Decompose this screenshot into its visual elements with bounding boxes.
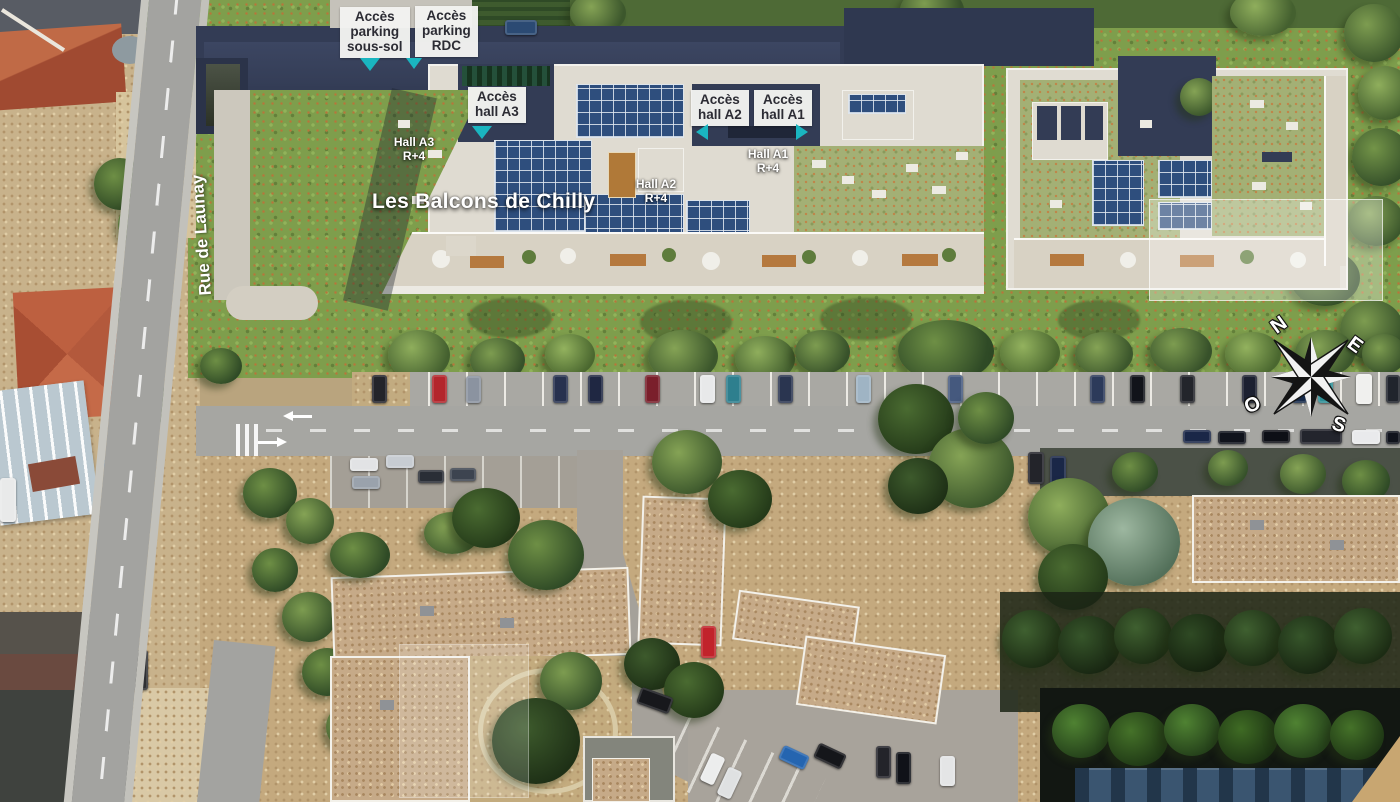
car (505, 20, 537, 35)
car (1180, 375, 1195, 403)
terrace-planter-wood (610, 254, 646, 266)
van (0, 478, 16, 522)
tree (545, 334, 595, 376)
car (372, 375, 387, 403)
bush (1164, 704, 1220, 756)
house-roof-red (0, 24, 127, 111)
car (940, 756, 955, 786)
roof-furniture (1286, 122, 1298, 130)
road-arrow-left-head (283, 411, 293, 421)
tree (1224, 610, 1282, 666)
label-acces-hall-a1: Accès hall A1 (754, 90, 812, 126)
terrace-planter-wood (470, 256, 504, 268)
roof-furniture (932, 186, 946, 194)
tree (1278, 616, 1338, 674)
roof-furniture (842, 176, 854, 184)
roof-furniture (1250, 100, 1264, 108)
tree (1150, 328, 1212, 374)
car (701, 626, 716, 658)
garden-patio (446, 236, 476, 256)
tree (1168, 614, 1228, 672)
aerial-site-plan: N E O S Accès parking sous-sol Accès par… (0, 0, 1400, 802)
garden-bench (398, 120, 410, 128)
car (432, 375, 447, 403)
tree (795, 330, 850, 374)
terrace-shrub (522, 250, 536, 264)
terrace-table (702, 252, 720, 270)
solar-array (1158, 160, 1212, 198)
terrace-table (560, 248, 576, 264)
entrance-canopy (728, 126, 798, 138)
label-acces-parking-sous-sol: Accès parking sous-sol (340, 7, 410, 58)
roof-furniture (906, 164, 918, 172)
building-roof (1192, 495, 1400, 583)
phase-highlight-overlay (400, 645, 528, 797)
car (1028, 452, 1044, 484)
walkway (214, 90, 254, 300)
road-arrow-right (258, 441, 278, 444)
building-roof (637, 496, 726, 647)
access-arrow-right-icon (796, 124, 808, 140)
roof-vent (420, 606, 434, 616)
car (466, 376, 481, 403)
terrace-band (318, 232, 984, 294)
roof-furniture (1252, 182, 1266, 190)
tree (1114, 608, 1172, 664)
roof-furniture (1140, 120, 1152, 128)
car (1386, 375, 1400, 403)
car (553, 375, 568, 403)
solar-panel (1061, 106, 1081, 140)
terrace-planter-wood (902, 254, 938, 266)
car (645, 375, 660, 403)
car (588, 375, 603, 403)
car (352, 476, 380, 489)
roof-vent (380, 700, 394, 710)
terrace-shrub (662, 248, 676, 262)
road-arrow-right-head (277, 437, 287, 447)
tree (252, 548, 298, 592)
label-acces-hall-a2: Accès hall A2 (691, 90, 749, 126)
roof-furniture (1050, 200, 1062, 208)
terrace-shrub (942, 248, 956, 262)
bush (1208, 450, 1248, 486)
car (948, 375, 963, 403)
bush (1218, 710, 1278, 764)
terrace-table (1120, 252, 1136, 268)
tree (888, 458, 948, 514)
solar-array (848, 94, 906, 114)
access-arrow-down-icon (472, 126, 492, 139)
car (896, 752, 911, 784)
bush (1274, 704, 1332, 758)
solar-array (576, 84, 684, 138)
tree (1000, 330, 1060, 376)
solar-array (494, 140, 592, 232)
solar-panel (1037, 106, 1057, 140)
tree (282, 592, 336, 642)
roof-planting-grid (462, 66, 550, 86)
phase-highlight-overlay (1150, 200, 1382, 300)
car (1130, 375, 1145, 403)
terrace-planter-wood (1050, 254, 1084, 266)
car (386, 455, 414, 468)
hall-a2-tag: Hall A2 R+4 (620, 178, 692, 206)
car (778, 375, 793, 403)
tree (452, 488, 520, 548)
project-title: Les Balcons de Chilly (372, 190, 595, 214)
tree (508, 520, 584, 590)
roof-vent (1330, 540, 1344, 550)
solar-panel (1085, 106, 1103, 140)
crosswalk (236, 424, 260, 456)
bush (1112, 452, 1158, 492)
building-roof-sliver (1075, 768, 1400, 802)
label-acces-parking-rdc: Accès parking RDC (415, 6, 478, 57)
road-arrow-left (292, 415, 312, 418)
roof-furniture (872, 190, 886, 198)
terrace-table (852, 250, 868, 266)
bush (1280, 454, 1326, 494)
tree (958, 392, 1014, 444)
roof-furniture (956, 152, 968, 160)
tree-shadow (468, 298, 552, 338)
tree (1075, 332, 1133, 376)
roof-vent (500, 618, 514, 628)
label-acces-hall-a3: Accès hall A3 (468, 87, 526, 123)
balcony-edge (318, 286, 984, 294)
access-arrow-left-icon (696, 124, 708, 140)
tree (708, 470, 772, 528)
building-roof-inner (592, 758, 650, 802)
bush (1108, 712, 1168, 766)
car (700, 375, 715, 403)
solar-panel (1262, 152, 1292, 162)
hall-a1-tag: Hall A1 R+4 (732, 148, 804, 176)
car (1218, 431, 1246, 444)
solar-array (1092, 160, 1144, 226)
bush (1052, 704, 1110, 758)
roof-vent (1250, 520, 1264, 530)
terrace-planter-wood (762, 255, 796, 267)
tree (1002, 610, 1062, 668)
winding-path (226, 286, 318, 320)
roof-furniture (812, 160, 826, 168)
terrace-shrub (802, 250, 816, 264)
hall-a3-tag: Hall A3 R+4 (378, 136, 450, 164)
tree (330, 532, 390, 578)
tree (286, 498, 334, 544)
bush (1330, 710, 1384, 760)
car (876, 746, 891, 778)
tree (664, 662, 724, 718)
car (726, 375, 741, 403)
car (1183, 430, 1211, 443)
car (418, 470, 444, 483)
car (1090, 375, 1105, 403)
tree (200, 348, 242, 384)
tree (1334, 608, 1392, 664)
access-arrow-down-icon (406, 58, 422, 69)
car (856, 375, 871, 403)
tree (1058, 616, 1120, 674)
access-arrow-down-icon (360, 58, 380, 71)
car (350, 458, 378, 471)
dark-roofs-strip (844, 8, 1094, 66)
car (450, 468, 476, 481)
car (1386, 431, 1400, 444)
tree (1344, 4, 1400, 62)
